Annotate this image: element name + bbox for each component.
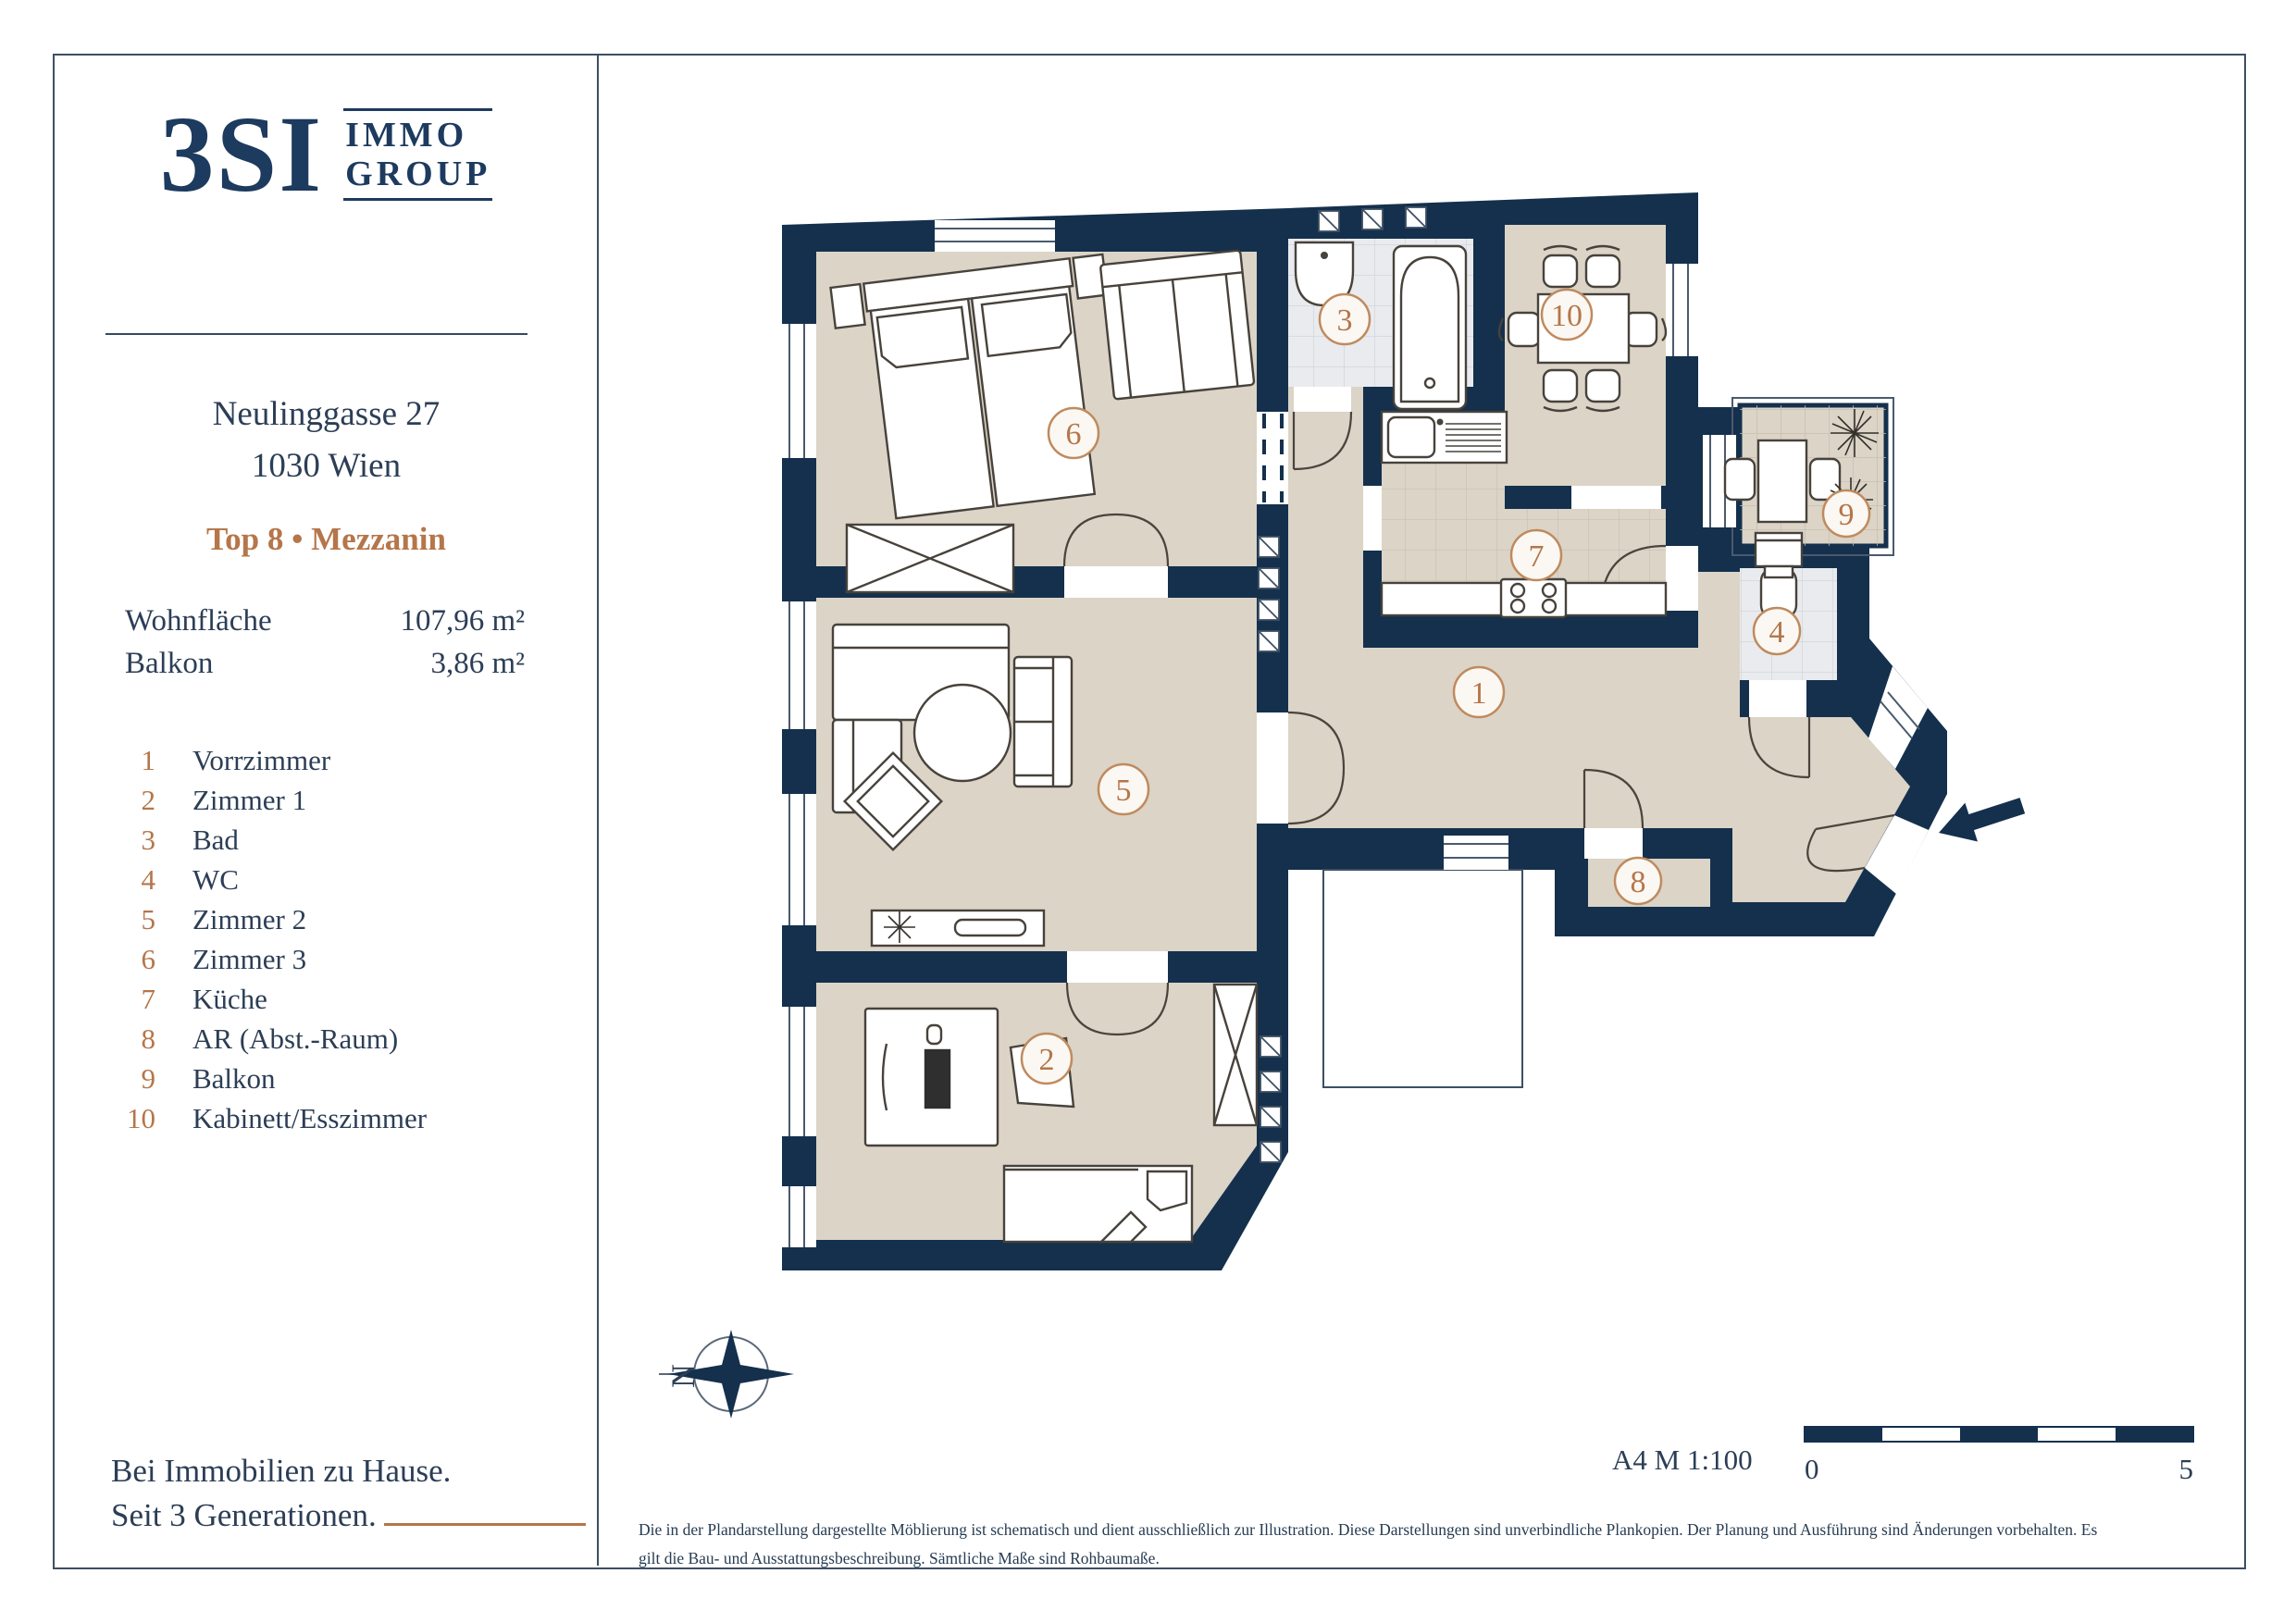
- svg-text:6: 6: [1066, 417, 1082, 452]
- dining-chair: [1586, 370, 1620, 402]
- doorgap-room6-bottom: [1064, 566, 1168, 598]
- svg-text:3: 3: [1337, 304, 1353, 338]
- doorgap-room10-kitchen: [1571, 486, 1661, 509]
- wardrobe-room2: [1214, 985, 1257, 1125]
- window-hall-bottom: [1444, 836, 1508, 870]
- svg-text:7: 7: [1529, 539, 1545, 574]
- wc-toilet: [1756, 533, 1802, 618]
- kitchen-sink-counter: [1382, 412, 1507, 463]
- hall-main-floor: [1288, 648, 1740, 828]
- badge-3: 3: [1320, 294, 1370, 344]
- scale-note: A4 M 1:100: [1612, 1443, 1753, 1476]
- badge-8: 8: [1615, 858, 1661, 904]
- floorplan-page: { "brand": { "logo_main": "3SI", "logo_s…: [0, 0, 2296, 1623]
- doorgap-wc: [1749, 680, 1806, 717]
- svg-text:9: 9: [1839, 498, 1855, 532]
- doorgap-room5-right: [1257, 712, 1288, 824]
- desk-room2: [865, 1009, 998, 1146]
- svg-text:8: 8: [1631, 865, 1646, 899]
- pillow: [1148, 1171, 1186, 1210]
- window-room10-right: [1666, 264, 1698, 356]
- floor-plan: 1 2 3 4 5 6 7 8 9 10 N 0 5 A4 M 1:100: [0, 0, 2296, 1623]
- badge-2: 2: [1022, 1034, 1072, 1084]
- single-bed: [1004, 1166, 1192, 1242]
- sofa-room5-right: [1014, 657, 1072, 787]
- scale-bar: 0 5 A4 M 1:100: [1612, 1427, 2193, 1485]
- doorgap-bath: [1294, 387, 1351, 412]
- badge-9: 9: [1823, 490, 1869, 537]
- scale-start-label: 0: [1805, 1453, 1819, 1485]
- svg-text:1: 1: [1471, 676, 1487, 711]
- pillow: [877, 307, 968, 369]
- sideboard-plant: [884, 911, 915, 943]
- dining-chair: [1586, 255, 1620, 287]
- scale-end-label: 5: [2179, 1453, 2194, 1485]
- badge-4: 4: [1754, 608, 1800, 654]
- doorgap-kitchen-right: [1666, 546, 1698, 611]
- entrance-arrow: [1932, 787, 2029, 852]
- bathtub: [1394, 246, 1466, 409]
- pillow: [982, 294, 1073, 356]
- hall-corridor-floor: [1288, 387, 1363, 655]
- doorgap-room5-bottom: [1067, 951, 1168, 983]
- doorgap-kitchen-left: [1363, 486, 1382, 551]
- window-left-3: [782, 794, 816, 925]
- window-left-4: [782, 1007, 816, 1136]
- dining-chair: [1544, 370, 1577, 402]
- badge-6: 6: [1049, 408, 1098, 458]
- round-table: [914, 685, 1011, 781]
- window-left-1: [782, 324, 816, 458]
- kitchen-stove-counter: [1382, 579, 1666, 617]
- doorgap-ar: [1584, 828, 1643, 859]
- badge-10: 10: [1542, 290, 1592, 340]
- dining-chair: [1508, 313, 1540, 346]
- window-left-5: [782, 1186, 816, 1247]
- sofa-room6: [1100, 250, 1254, 399]
- balcony-chair: [1725, 459, 1755, 500]
- compass: N: [659, 1330, 794, 1419]
- svg-text:10: 10: [1551, 299, 1582, 333]
- badge-5: 5: [1098, 764, 1148, 814]
- wardrobe-room6: [847, 525, 1013, 592]
- svg-text:5: 5: [1116, 774, 1132, 808]
- window-room6-top: [935, 220, 1055, 252]
- compass-n-label: N: [664, 1364, 701, 1388]
- vent-bath-top: [1319, 207, 1426, 231]
- courtyard-outline: [1323, 870, 1522, 1087]
- hall-right-strip-floor: [1698, 572, 1740, 655]
- window-left-2: [782, 601, 816, 729]
- badge-7: 7: [1511, 530, 1561, 580]
- badge-1: 1: [1454, 667, 1504, 717]
- svg-text:2: 2: [1039, 1043, 1055, 1077]
- balcony-table: [1758, 440, 1806, 522]
- svg-text:4: 4: [1769, 615, 1785, 650]
- dining-chair: [1544, 255, 1577, 287]
